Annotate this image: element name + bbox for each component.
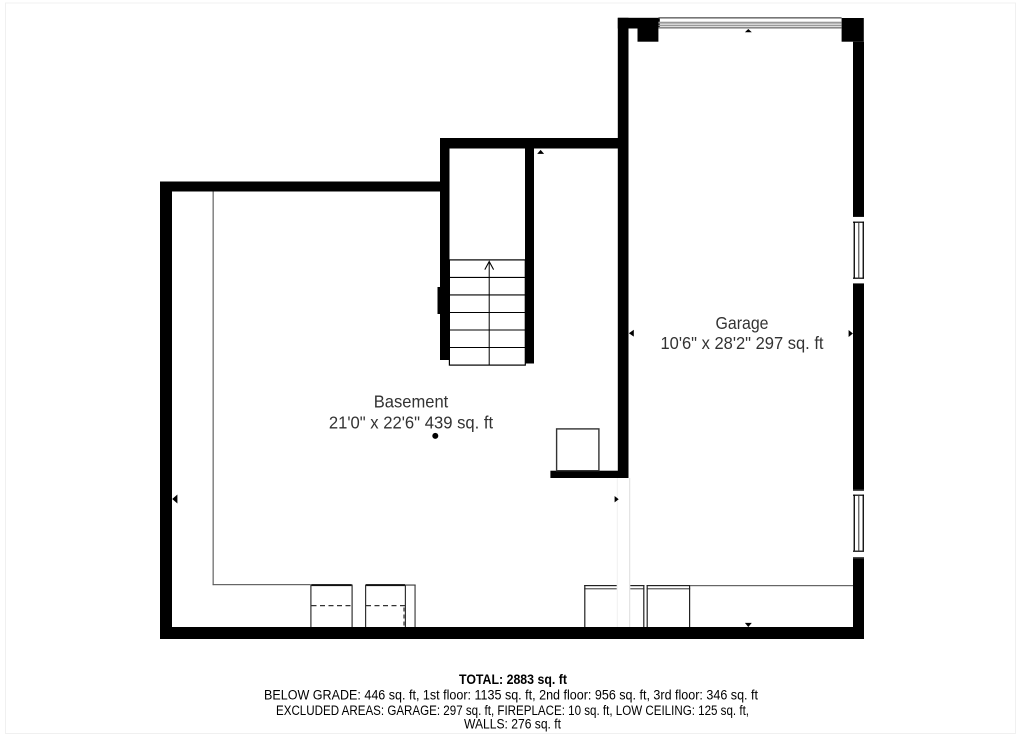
svg-text:BELOW GRADE: 446 sq. ft, 1st f: BELOW GRADE: 446 sq. ft, 1st floor: 1135… [264, 688, 758, 703]
svg-text:Basement: Basement [374, 392, 449, 412]
svg-text:WALLS: 276 sq. ft: WALLS: 276 sq. ft [464, 717, 561, 732]
svg-text:10'6" x 28'2" 297 sq. ft: 10'6" x 28'2" 297 sq. ft [661, 333, 824, 353]
svg-text:TOTAL: 2883 sq. ft: TOTAL: 2883 sq. ft [459, 672, 567, 687]
svg-text:Garage: Garage [716, 313, 769, 333]
svg-text:21'0" x 22'6" 439 sq. ft: 21'0" x 22'6" 439 sq. ft [329, 413, 493, 433]
